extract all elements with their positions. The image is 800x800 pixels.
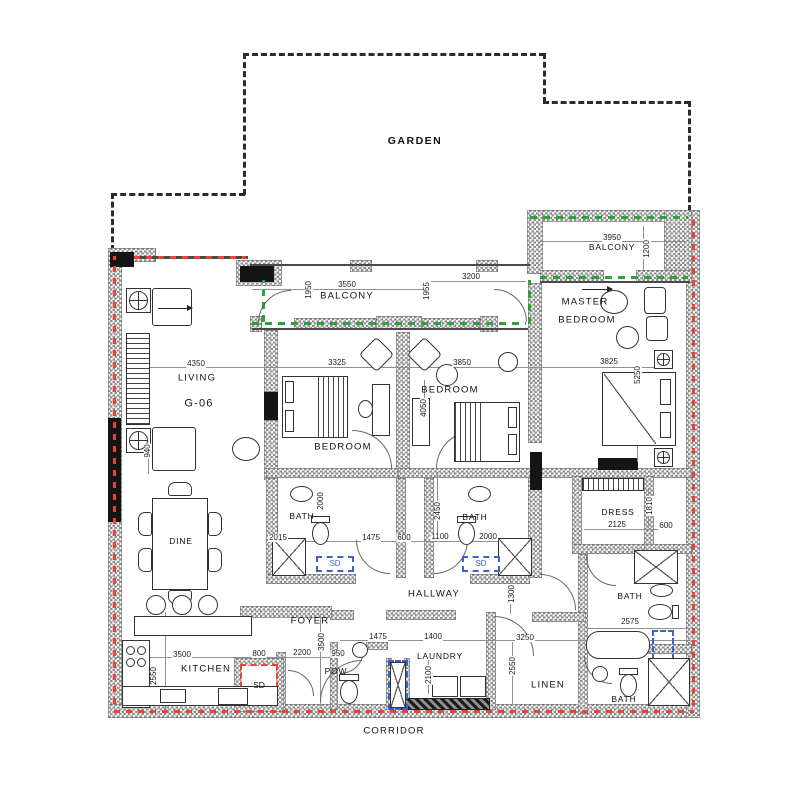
dim-kitchen-d: 2550 [150,666,158,686]
balcony-top-label: BALCONY [589,243,635,253]
dim-living-w: 4350 [186,360,206,368]
dim-hall-seg1: 1475 [361,534,381,542]
dine-chair-right-1 [208,512,222,536]
living-label: LIVING [178,374,216,385]
living-side-table-top [126,288,151,313]
bed1-pillow-2 [285,410,294,432]
dim-balcony-top-d: 1200 [643,239,651,259]
washer [432,676,458,697]
firerating-right [692,218,695,706]
master-chair-1 [644,287,666,314]
master-shower [634,550,678,584]
door-master-balcony [494,289,527,322]
dim-bedroom2-w: 3850 [452,359,472,367]
dine-label: DINE [169,537,193,547]
wall-balcony-top-line [250,264,530,266]
master-stool [616,326,639,349]
guest-bath-shower [648,658,690,706]
living-armchair-top [152,288,192,326]
dim-bedroom2-d: 4050 [420,398,428,418]
wall-bath1-top [266,468,398,478]
bath2-sink [468,486,491,502]
door-bath1 [356,540,390,574]
wall-linen-top [532,612,586,622]
door-master-bedroom [540,574,576,610]
master-pillow-2 [660,412,671,438]
dine-chair-left-1 [138,512,152,536]
wall-black-bed2-seg [530,452,542,490]
laundry-label: LAUNDRY [417,652,463,662]
master-blanket-fold [604,374,656,444]
wall-living-bed1-upper [264,330,278,392]
garden-boundary-step-left [111,193,245,196]
dryer [460,676,486,697]
dress-label: DRESS [601,508,634,518]
bed2-pillow-2 [508,434,517,455]
guest-bath-toilet-tank [619,668,638,675]
bath1-sd-label: SD [329,560,340,568]
garden-boundary-left-upper [243,53,246,195]
wall-corridor-left [396,478,406,578]
dim-master-w: 3825 [599,358,619,366]
hallway-label: HALLWAY [408,590,460,601]
dim-foyer-w: 2200 [292,649,312,657]
bed1-blanket [318,377,347,437]
door-master-bath [586,556,616,586]
bath1-sd-box: SD [316,556,354,572]
dim-bath1-w: 2015 [268,534,288,542]
bar-counter [134,616,252,636]
bath1-toilet-bowl [312,522,329,545]
bed1-desk-chair [358,400,373,418]
wall-balcony-pier-2 [350,260,372,272]
bath-guest-label: BATH [611,695,636,705]
vent-shaft-blue-border [388,660,408,710]
door-kitchen [288,670,314,696]
master-bathtub [586,631,650,659]
dim-living-s: 940 [144,443,152,458]
stove-burner-1 [126,646,135,655]
bath2-label: BATH [462,513,487,523]
bath1-sink [290,486,313,502]
dimline-balcony-sec [430,281,526,282]
living-armchair-bottom [152,427,196,471]
pow-label: POW [325,667,348,677]
bath2-shower [498,538,532,576]
bedroom2-label: BEDROOM [421,386,479,397]
dim-balcony-top-w: 3950 [602,234,622,242]
garden-boundary-step-right [543,101,690,104]
pow-sink [352,642,368,658]
master-bedroom-label-2: BEDROOM [558,316,616,327]
blue-shaft-master-bath [652,630,674,660]
dim-bedroom1-w: 3325 [327,359,347,367]
wall-black-balcony-pier [240,266,274,282]
dine-chair-top [168,482,192,496]
dim-balcony-main-dr: 1955 [423,281,431,301]
master-bedroom-label-1: MASTER [562,298,609,309]
dim-pow-w: 950 [330,650,345,658]
dim-dress-d: 1810 [646,496,654,516]
sd-kitchen-label: SD [253,681,265,691]
dim-balcony-main-w: 3550 [337,281,357,289]
bed2-stool [436,364,458,386]
kitchen-sink [160,689,186,703]
dim-dress-w: 2125 [607,521,627,529]
wall-trbalcony-bottom-line [540,281,690,283]
dine-chair-right-2 [208,548,222,572]
bed2-vanity-stool [498,352,518,372]
wall-balcony-bottom-line [252,328,528,330]
foyer-label: FOYER [291,617,330,628]
master-side-table-top [654,350,673,369]
stove-burner-2 [137,646,146,655]
dim-kitchen-w: 3500 [172,651,192,659]
dress-wardrobe [582,478,644,491]
bath1-shower [272,538,306,576]
dim-pow-s: 1475 [368,633,388,641]
wall-hall-south-1 [330,610,354,620]
dim-dress-s: 600 [658,522,673,530]
master-pillow-1 [660,379,671,405]
bath2-toilet-bowl [458,522,475,545]
living-direction-arrow [158,308,192,309]
living-sofa [126,333,150,425]
dim-linen-w: 3250 [515,634,535,642]
unit-number-label: G-06 [184,398,213,411]
pow-toilet-bowl [340,680,358,704]
bedroom1-label: BEDROOM [314,443,372,454]
dim-balcony-sec-w: 3200 [461,273,481,281]
guest-bath-sink [592,666,608,682]
wall-hall-south-2 [386,610,456,620]
bath2-sd-box: SD [462,556,500,572]
master-bath-toilet-bowl [648,604,672,620]
bed2-pillow-1 [508,407,517,428]
wall-dress-left [572,476,582,550]
dim-balcony-main-dl: 1950 [305,280,313,300]
dim-master-d: 5250 [634,365,642,385]
dim-bath2-w: 2000 [478,533,498,541]
master-bath-sink [650,584,673,597]
firerating-bottom [114,710,694,713]
wall-corridor-right [424,478,434,578]
greenline-balcony-top [530,216,688,219]
kitchen-label: KITCHEN [181,665,231,676]
floor-plan-canvas: GARDEN [0,0,800,800]
kitchen-fridge [218,688,248,705]
dim-corridor-d: 2450 [434,501,442,521]
greenline-master-north [540,276,688,279]
greenline-master-door [528,280,531,324]
bath1-label: BATH [289,512,314,522]
master-bath-toilet-tank [672,605,679,619]
garden-label: GARDEN [388,135,443,147]
dim-mbath-w: 2575 [620,618,640,626]
dimline-mbath [586,628,690,629]
wall-bath2-top [398,468,542,478]
bed1-pillow-1 [285,381,294,403]
corridor-label: CORRIDOR [363,727,424,738]
dim-hall-seg2: 600 [396,534,411,542]
dim-hall-seg3: 1100 [430,533,449,541]
wall-black-hatch-laundry [398,698,490,710]
greenline-balcony-main [252,322,526,325]
bar-stool-3 [198,595,218,615]
master-chair-2 [646,316,668,341]
wall-mbath-left [578,554,588,714]
bed1-desk [372,384,390,436]
dimline-dress [584,529,666,530]
dim-hallway-d: 1300 [508,584,516,604]
wall-black-living-seg [264,392,278,420]
living-coffee-table [232,437,260,461]
bed2-blanket [455,403,485,461]
bar-stool-2 [172,595,192,615]
bar-stool-1 [146,595,166,615]
bath-master-label: BATH [617,592,642,602]
wall-pow-top [366,642,388,650]
garden-boundary-right-lower [688,101,691,211]
master-side-table-bottom [654,448,673,467]
dim-foyer-d: 3500 [318,632,326,652]
stove-burner-3 [126,658,135,667]
stove-burner-4 [137,658,146,667]
garden-boundary-left-lower [111,193,114,251]
linen-label: LINEN [531,681,565,692]
garden-boundary-top [243,53,545,56]
dim-laundry-d: 2100 [425,665,433,685]
firerating-topleft [134,256,246,259]
dine-chair-left-2 [138,548,152,572]
garden-boundary-right-upper [543,53,546,103]
wall-black-master-top [598,458,638,470]
wall-balcony-pier-3 [476,260,498,272]
dim-kitchen-s: 800 [251,650,266,658]
firerating-left [113,256,116,704]
dim-bath1-d: 2000 [317,491,325,511]
bath2-sd-label: SD [475,560,486,568]
dim-laundry-w: 1400 [423,633,443,641]
balcony-main-label: BALCONY [320,292,374,303]
dim-linen-d: 2550 [509,656,517,676]
